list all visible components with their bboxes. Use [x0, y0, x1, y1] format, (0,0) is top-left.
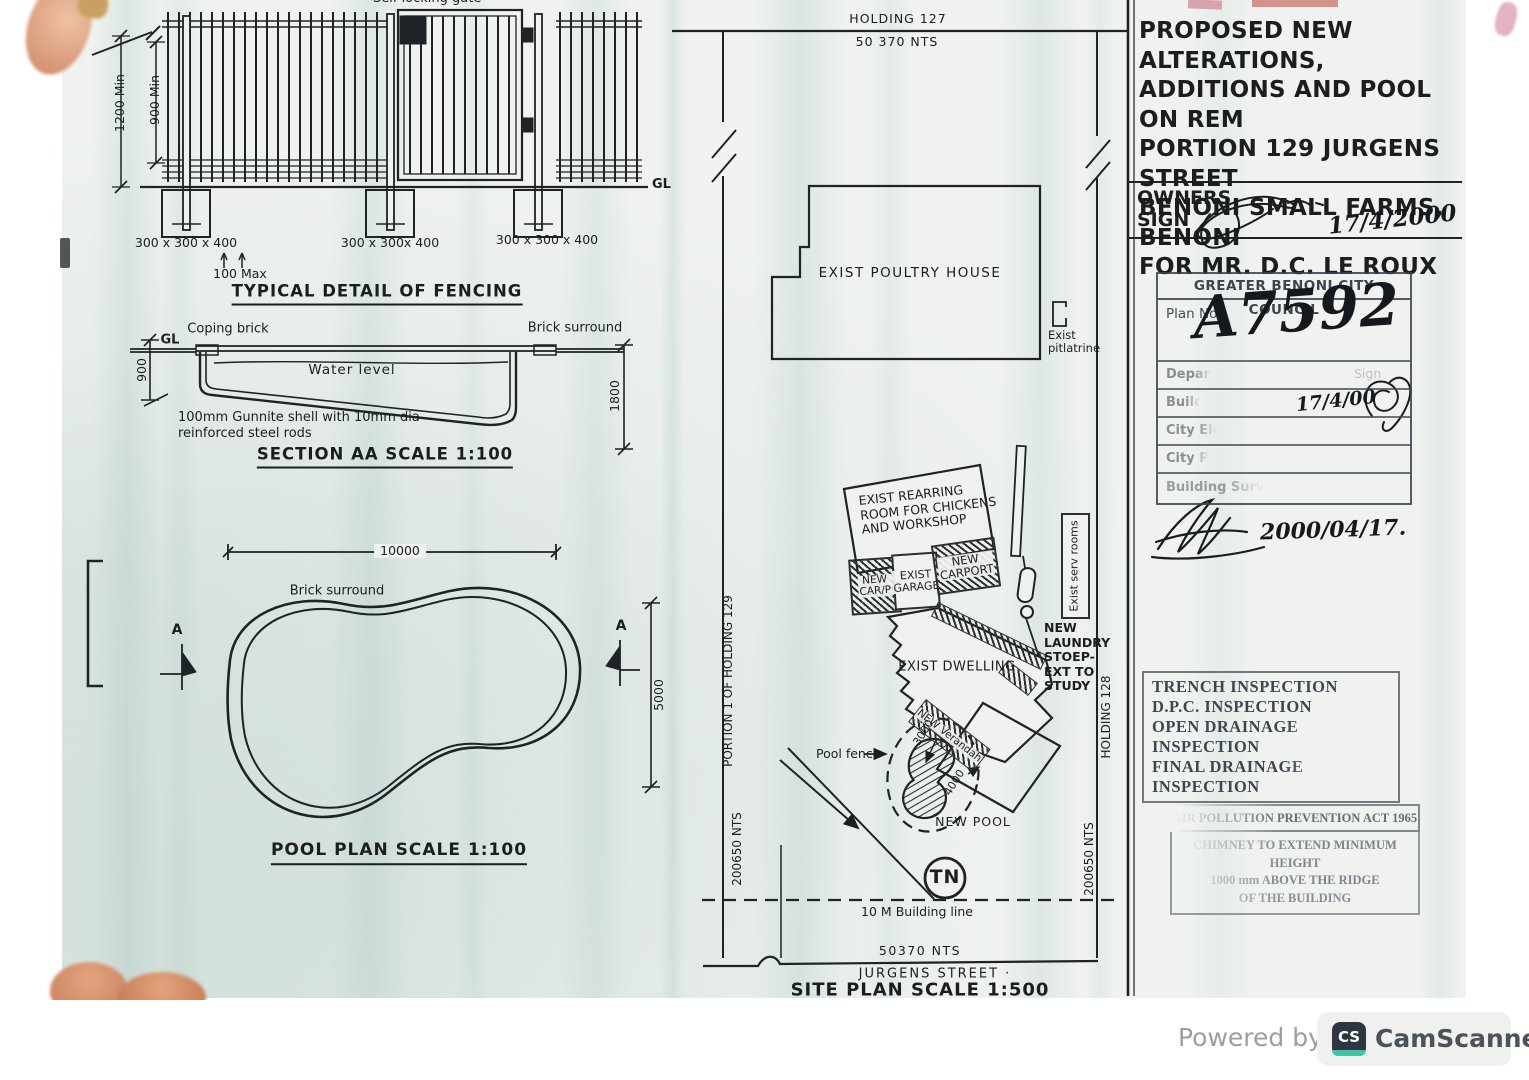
- pool-dim-10000: 10000: [374, 544, 426, 558]
- building-line-label: 10 M Building line: [861, 905, 973, 919]
- section-title: SECTION AA SCALE 1:100: [257, 446, 513, 469]
- scan-artifact-corner: [1492, 0, 1520, 38]
- true-north-symbol: TN: [930, 867, 961, 889]
- site-plan-title: SITE PLAN SCALE 1:500: [791, 981, 1050, 1002]
- south-dim-label: 50370 NTS: [879, 944, 961, 958]
- gunnite-note: 100mm Gunnite shell with 10mm dia reinfo…: [178, 410, 420, 442]
- new-carport-shape: NEW CARPORT: [931, 537, 1001, 595]
- plan-no-value: A7592: [1191, 271, 1402, 352]
- section-gl-label: GL: [161, 334, 180, 349]
- scanned-drawing-page: Self locking gate 1200 Min 900 Min 300 x…: [0, 0, 1529, 1080]
- coping-brick-label: Coping brick: [187, 323, 268, 338]
- west-dim-label: 200650 NTS: [731, 812, 745, 886]
- inspection-line-2: D.P.C. INSPECTION: [1152, 697, 1390, 717]
- brick-surround-label: Brick surround: [528, 322, 623, 337]
- section-marker-a-right: A: [616, 618, 627, 634]
- council-row-city-ele: City Ele: [1166, 423, 1221, 438]
- section-dim-900: 900: [135, 358, 149, 382]
- scan-streak: [1000, 0, 1080, 998]
- inspection-line-4: FINAL DRAINAGE INSPECTION: [1152, 757, 1390, 797]
- pollution-line-2: 1000 mm ABOVE THE RIDGE: [1176, 872, 1414, 890]
- serv-rooms-shape: Exist serv rooms: [1061, 513, 1090, 619]
- serv-rooms-label: Exist serv rooms: [1069, 520, 1082, 611]
- east-dim-label: 200650 NTS: [1083, 822, 1097, 896]
- owners-sign-label: OWNERS SIGN: [1137, 187, 1231, 231]
- holding-127-label: HOLDING 127: [849, 12, 946, 26]
- fencing-title: TYPICAL DETAIL OF FENCING: [232, 283, 523, 306]
- scan-streak: [755, 0, 845, 998]
- scan-streak: [92, 0, 162, 998]
- pollution-stamp-body: CHIMNEY TO EXTEND MINIMUM HEIGHT 1000 mm…: [1170, 832, 1420, 915]
- pool-brick-surround-label: Brick surround: [290, 585, 385, 600]
- scan-streak: [660, 0, 685, 998]
- pollution-line-3: OF THE BUILDING: [1176, 890, 1414, 908]
- gate-label: Self locking gate: [373, 0, 481, 7]
- exist-dwelling-label: EXIST DWELLING: [898, 661, 1015, 676]
- new-laundry-label: NEW LAUNDRY STOEP- EXT TO STUDY: [1044, 621, 1110, 694]
- camscanner-icon: CS: [1332, 1022, 1366, 1056]
- project-title: PROPOSED NEW ALTERATIONS, ADDITIONS AND …: [1139, 17, 1469, 283]
- water-level-label: Water level: [308, 363, 395, 379]
- footing-label-2: 300 x 300x 400: [341, 236, 439, 250]
- fence-dim-1200: 1200 Min: [113, 74, 127, 132]
- scan-streak: [560, 0, 630, 998]
- section-marker-a-left: A: [172, 622, 183, 638]
- camscanner-brand-text: CamScanner: [1375, 1024, 1529, 1053]
- fence-dim-900: 900 Min: [148, 75, 162, 125]
- fence-gl-label: GL: [652, 178, 671, 193]
- section-dim-1800: 1800: [608, 380, 622, 412]
- spacing-label: 100 Max: [213, 267, 267, 281]
- council-row-surveyor: Building Surve: [1166, 480, 1273, 495]
- council-sign-label: Sign: [1354, 366, 1381, 381]
- pitlatrine-label: Exist pitlatrine: [1048, 329, 1100, 355]
- scan-streak: [160, 0, 200, 998]
- footing-label-3: 300 x 300 x 400: [496, 233, 598, 247]
- inspection-line-1: TRENCH INSPECTION: [1152, 677, 1390, 697]
- pool-dim-5000: 5000: [652, 679, 666, 711]
- exist-garage-label: EXIST GARAGE: [891, 568, 941, 594]
- new-carport-label: NEW CARPORT: [937, 550, 996, 582]
- camscanner-badge: CS CamScanner: [1317, 1012, 1511, 1066]
- council-row-dept: Depart: [1166, 367, 1216, 382]
- new-carp-label: NEW CAR/P: [857, 574, 892, 598]
- surveyor-approval-date: 2000/04/17.: [1260, 515, 1407, 545]
- pool-fence-label: Pool fence: [816, 747, 880, 761]
- new-pool-label: NEW POOL: [935, 815, 1011, 829]
- poultry-house-label: EXIST POULTRY HOUSE: [819, 266, 1002, 282]
- pollution-stamp-header: AIR POLLUTION PREVENTION ACT 1965 Sec. 1…: [1170, 804, 1420, 832]
- pollution-stamp: AIR POLLUTION PREVENTION ACT 1965 Sec. 1…: [1170, 804, 1420, 915]
- north-dim-label: 50 370 NTS: [856, 35, 939, 49]
- inspection-line-3: OPEN DRAINAGE INSPECTION: [1152, 717, 1390, 757]
- council-row-city-pl: City Pl: [1166, 451, 1213, 466]
- pool-plan-title: POOL PLAN SCALE 1:100: [271, 841, 527, 865]
- powered-by-text: Powered by: [1178, 1024, 1323, 1053]
- footing-label-1: 300 x 300 x 400: [135, 236, 237, 250]
- portion-129-label: PORTION 1 OF HOLDING 129: [722, 595, 736, 767]
- inspection-stamp: TRENCH INSPECTION D.P.C. INSPECTION OPEN…: [1142, 671, 1400, 803]
- pollution-line-1: CHIMNEY TO EXTEND MINIMUM HEIGHT: [1176, 837, 1414, 872]
- council-row-build: Build: [1166, 395, 1203, 410]
